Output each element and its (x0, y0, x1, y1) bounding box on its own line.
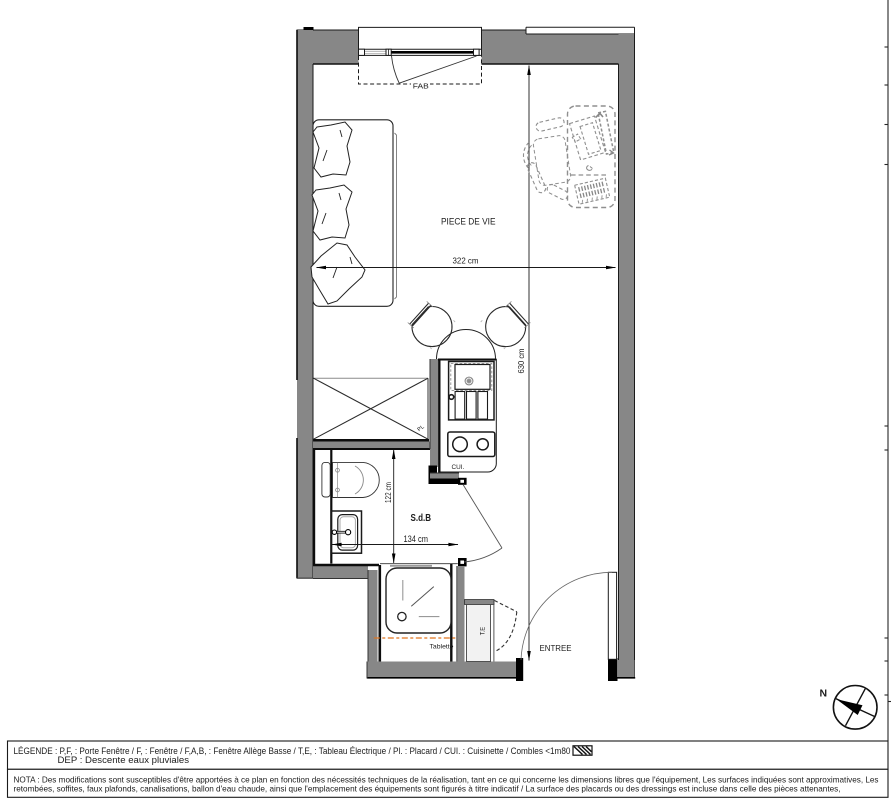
svg-text:FAB: FAB (413, 82, 429, 91)
svg-text:CUI.: CUI. (452, 465, 465, 471)
svg-text:S.d.B: S.d.B (411, 513, 432, 524)
svg-text:T.E: T.E (479, 627, 486, 636)
svg-text:ENTREE: ENTREE (540, 643, 572, 653)
svg-text:Tablette: Tablette (430, 644, 454, 651)
svg-text:630 cm: 630 cm (516, 349, 526, 374)
svg-text:N: N (820, 688, 828, 700)
svg-text:122 cm: 122 cm (384, 482, 393, 503)
svg-text:134 cm: 134 cm (404, 534, 429, 544)
svg-text:PIECE DE VIE: PIECE DE VIE (441, 217, 496, 227)
svg-text:322 cm: 322 cm (453, 256, 479, 266)
svg-text:retombées, soffites, faux plaf: retombées, soffites, faux plafonds, cana… (14, 783, 841, 793)
svg-text:DEP : Descente eaux pluviales: DEP : Descente eaux pluviales (58, 755, 190, 765)
